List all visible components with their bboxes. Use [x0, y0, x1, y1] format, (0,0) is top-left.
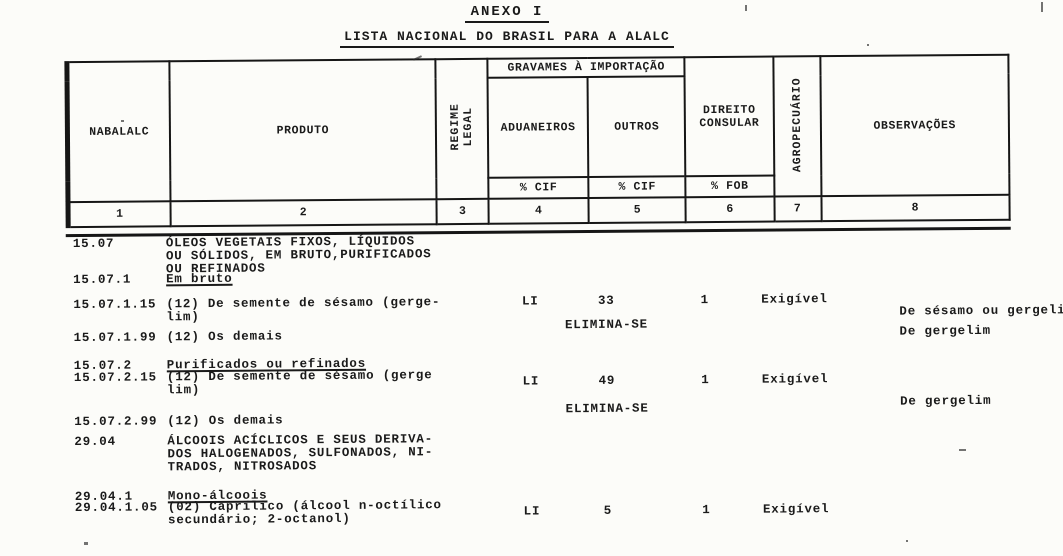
col-number-7: 7 — [774, 196, 821, 221]
scan-speck — [1041, 2, 1043, 12]
page-subtitle: LISTA NACIONAL DO BRASIL PARA A ALALC — [340, 29, 674, 48]
observacoes-cell — [888, 266, 1063, 280]
observacoes-cell: De gergelim — [888, 324, 1063, 338]
outros-cell: 1 — [658, 497, 755, 524]
agropecuario-cell — [843, 496, 890, 522]
regime-legal-cell — [505, 432, 557, 471]
regime-legal-cell — [505, 412, 557, 425]
agropecuario-cell — [842, 410, 889, 423]
nabalalc-code: 15.07.1.15 — [66, 298, 166, 325]
tariff-table-body: 15.07 ÓLEOS VEGETAIS FIXOS, LÍQUIDOS OU … — [66, 228, 1058, 528]
outros-cell — [657, 411, 754, 425]
direito-consular-cell — [754, 410, 842, 424]
col-header-aduaneiros: ADUANEIROS — [488, 77, 589, 178]
col-header-gravames: GRAVAMES À IMPORTAÇÃO — [488, 57, 685, 78]
regime-legal-cell: LI — [505, 368, 557, 394]
regime-legal-vertical-label: REGIME LEGAL — [449, 103, 475, 151]
outros-cell: 1 — [657, 367, 754, 394]
produto-cell: (12) De semente de sésamo (gerge lim) — [167, 369, 505, 398]
scanned-document-page: ANEXO I LISTA NACIONAL DO BRASIL PARA A … — [0, 0, 1063, 556]
produto-cell: (12) Os demais — [167, 329, 505, 345]
col-number-1: 1 — [68, 201, 170, 227]
direito-consular-cell: Exigível — [755, 496, 843, 523]
agropecuario-cell — [841, 268, 888, 281]
col-header-outros: OUTROS — [588, 76, 686, 177]
nabalalc-code: 29.04 — [67, 435, 167, 475]
produto-cell: ÁLCOOIS ACÍCLICOS E SEUS DERIVA- DOS HAL… — [167, 433, 505, 475]
col-number-5: 5 — [589, 197, 686, 223]
col-number-6: 6 — [686, 197, 774, 223]
outros-unit-label: % CIF — [589, 176, 686, 198]
aduaneiros-unit-label: % CIF — [488, 177, 588, 199]
aduaneiros-cell: 49 — [557, 367, 657, 394]
direito-consular-cell — [753, 268, 841, 282]
observacoes-cell — [889, 428, 1063, 468]
observacoes-cell — [890, 494, 1063, 521]
outros-cell — [656, 233, 753, 273]
table-row: 29.04 ÁLCOOIS ACÍCLICOS E SEUS DERIVA- D… — [67, 428, 1057, 475]
agropecuario-cell — [842, 430, 889, 469]
nabalalc-code: 15.07 — [66, 237, 166, 277]
col-header-produto: PRODUTO — [169, 59, 437, 201]
regime-legal-cell — [504, 328, 556, 341]
outros-cell — [656, 269, 753, 283]
col-header-nabalalc: NABALALC — [67, 61, 170, 202]
nabalalc-code: 15.07.2.15 — [67, 371, 167, 398]
produto-cell: (12) De semente de sésamo (gerge- lim) — [166, 296, 504, 325]
aduaneiros-cell — [557, 431, 657, 471]
col-header-regime-legal: REGIME LEGAL — [435, 59, 488, 199]
document-title-wrap: ANEXO I — [0, 2, 1014, 23]
scan-speck — [121, 120, 124, 122]
nabalalc-code: 15.07.2.99 — [67, 415, 167, 429]
table-row: 15.07.2.15 (12) De semente de sésamo (ge… — [67, 364, 1057, 398]
direito-consular-cell — [753, 232, 841, 272]
produto-cell: Em bruto — [166, 271, 504, 287]
col-header-agropecuario: AGROPECUÁRIO — [773, 56, 821, 196]
table-row: 15.07.2.99 (12) Os demais ELIMINA-SE De … — [67, 408, 1057, 429]
outros-cell — [657, 431, 754, 471]
col-number-2: 2 — [170, 199, 437, 226]
agropecuario-cell — [841, 326, 888, 339]
scan-speck — [959, 449, 966, 451]
col-number-3: 3 — [437, 199, 489, 224]
table-scan-area: NABALALC PRODUTO REGIME LEGAL GRAVAMES À… — [0, 0, 1063, 556]
col-header-observacoes: OBSERVAÇÕES — [820, 55, 1009, 196]
scan-speck — [84, 542, 88, 545]
produto-cell: (12) Os demais — [167, 413, 505, 429]
nabalalc-code: 15.07.1 — [66, 273, 166, 287]
page-title: ANEXO I — [465, 4, 550, 23]
regime-legal-cell — [504, 234, 556, 273]
direito-consular-cell — [754, 430, 842, 470]
scan-speck — [906, 540, 908, 542]
nabalalc-code: 15.07.1.99 — [67, 331, 167, 345]
direito-consular-cell: Exigível — [753, 293, 841, 320]
produto-cell: (02) Caprílico (álcool n-octílico secund… — [168, 499, 506, 528]
aduaneiros-cell — [556, 269, 656, 283]
col-header-direito-consular: DIREITO CONSULAR — [685, 57, 774, 177]
outros-cell: 1 — [656, 294, 753, 321]
observacoes-cell — [888, 230, 1063, 270]
regime-legal-cell: LI — [506, 498, 558, 524]
direito-unit-label: % FOB — [686, 176, 774, 198]
aduaneiros-cell: 5 — [558, 497, 658, 524]
aduaneiros-cell: ELIMINA-SE — [556, 318, 656, 332]
table-row: 15.07.1.99 (12) Os demais ELIMINA-SE De … — [67, 324, 1057, 345]
table-row: 29.04.1.05 (02) Caprílico (álcool n-octí… — [68, 494, 1058, 528]
observacoes-cell — [889, 364, 1063, 391]
regime-legal-cell — [504, 270, 556, 283]
col-number-4: 4 — [489, 198, 589, 224]
direito-consular-cell — [753, 326, 841, 340]
agropecuario-cell — [841, 232, 888, 271]
col-number-8: 8 — [821, 195, 1010, 221]
observacoes-cell: De sésamo ou gergelim — [888, 291, 1063, 318]
document-subtitle-wrap: LISTA NACIONAL DO BRASIL PARA A ALALC — [0, 27, 1014, 48]
nabalalc-code: 29.04.1.05 — [68, 501, 168, 528]
observacoes-cell: De gergelim — [889, 394, 1063, 408]
regime-legal-cell: LI — [504, 295, 556, 321]
aduaneiros-cell — [556, 233, 656, 273]
direito-consular-cell: Exigível — [754, 366, 842, 393]
agropecuario-vertical-label: AGROPECUÁRIO — [790, 77, 804, 172]
agropecuario-cell — [841, 293, 888, 319]
tariff-table-header: NABALALC PRODUTO REGIME LEGAL GRAVAMES À… — [64, 54, 1010, 228]
aduaneiros-cell: ELIMINA-SE — [557, 402, 657, 416]
agropecuario-cell — [842, 366, 889, 392]
outros-cell — [656, 327, 753, 341]
